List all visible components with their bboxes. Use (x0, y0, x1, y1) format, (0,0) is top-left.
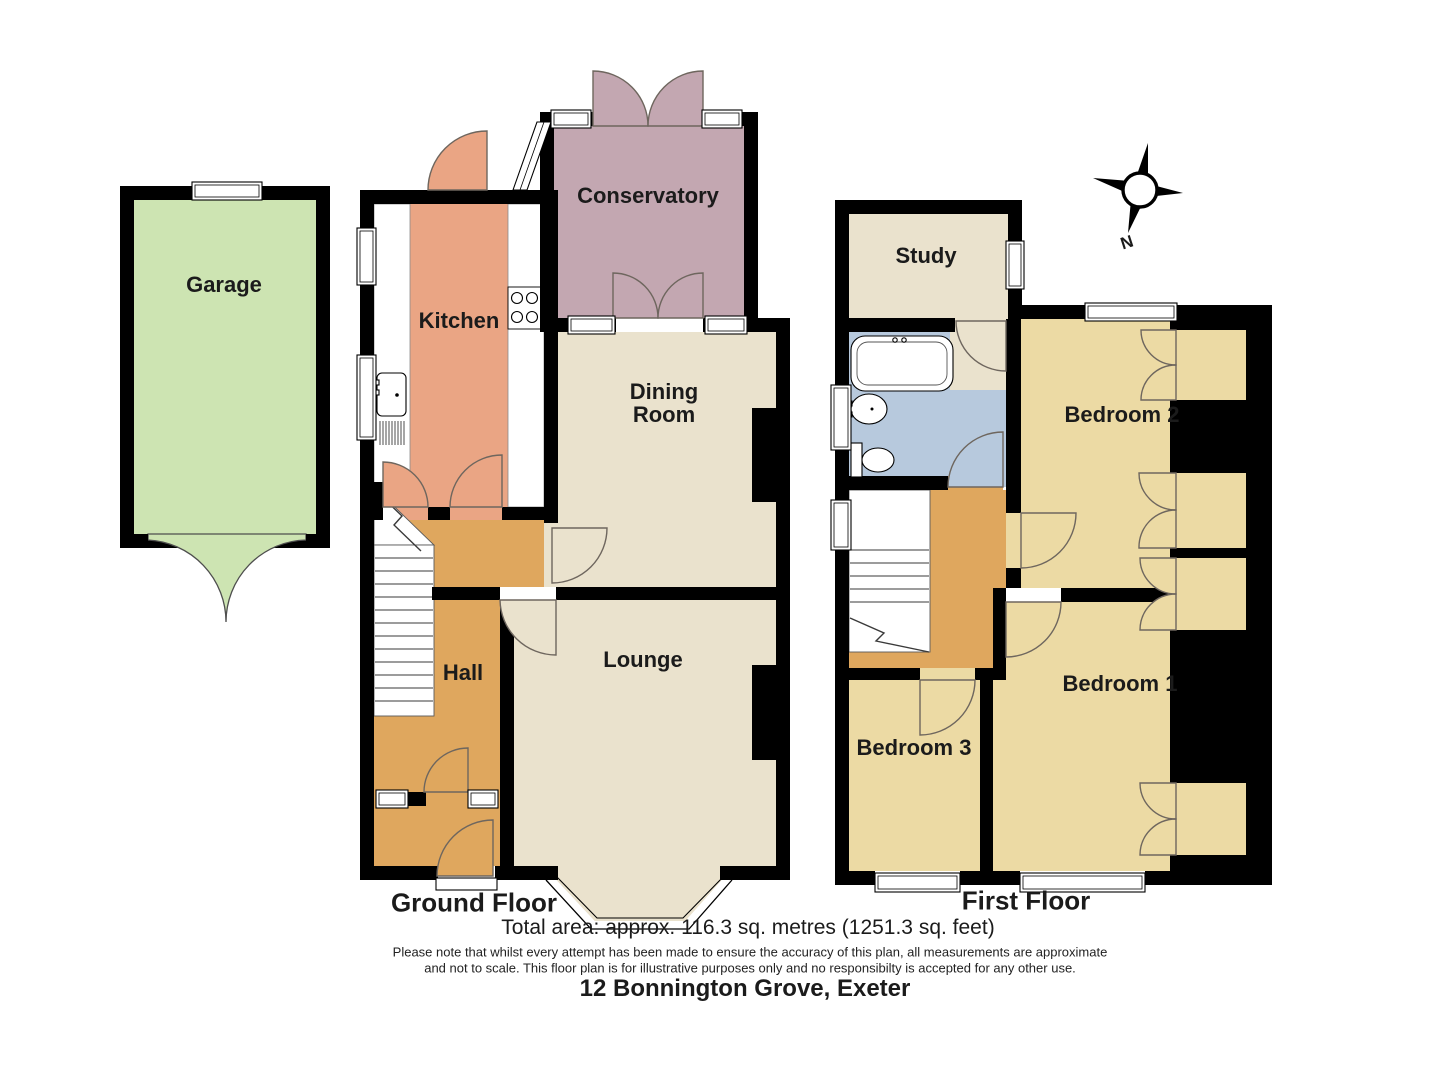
chimney-breast (752, 408, 776, 502)
first-floor-stairs (849, 490, 930, 652)
chimney-breast (752, 665, 776, 760)
garage-window-icon (192, 182, 262, 200)
first-floor-caption: First Floor (962, 886, 1091, 917)
conservatory-french-door (593, 71, 648, 126)
disclaimer-line2: and not to scale. This floor plan is for… (424, 961, 1076, 976)
hall-label: Hall (443, 660, 483, 686)
conservatory-label: Conservatory (577, 183, 719, 209)
kitchen-back-door (428, 131, 487, 190)
room-garage (120, 182, 330, 622)
conservatory-french-door (648, 71, 703, 126)
kitchen-counter-right (508, 204, 544, 507)
garage-label: Garage (186, 272, 262, 298)
bedroom1-label: Bedroom 1 (1063, 671, 1178, 697)
study-label: Study (895, 243, 956, 269)
floorplan-page: Garage Kitchen Conservatory Dining Room … (0, 0, 1440, 1080)
kitchen-label: Kitchen (419, 308, 500, 334)
room-conservatory (554, 126, 744, 318)
ground-floor-plan (357, 71, 790, 929)
dining-room-label: Dining Room (630, 380, 698, 426)
bathtub-icon (851, 336, 953, 391)
hob-icon (508, 287, 544, 329)
address-title: 12 Bonnington Grove, Exeter (580, 975, 911, 1003)
bedroom2-label: Bedroom 2 (1065, 402, 1180, 428)
total-area-text: Total area: approx. 116.3 sq. metres (12… (501, 916, 994, 940)
kitchen-counter-left (374, 204, 410, 507)
lounge-label: Lounge (603, 647, 682, 673)
first-floor-plan (831, 200, 1272, 892)
disclaimer-line1: Please note that whilst every attempt ha… (393, 945, 1108, 960)
compass-icon (1093, 143, 1183, 233)
bedroom3-label: Bedroom 3 (857, 735, 972, 761)
ground-floor-caption: Ground Floor (391, 888, 557, 919)
